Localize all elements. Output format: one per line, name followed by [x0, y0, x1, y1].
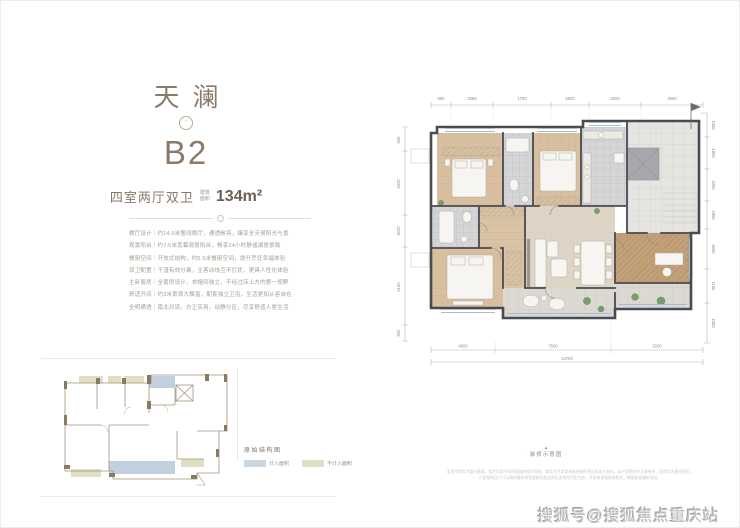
pillow [471, 161, 483, 168]
section-divider-vertical [237, 369, 238, 461]
plant [438, 200, 443, 205]
toilet [463, 212, 472, 223]
section-divider [41, 358, 336, 359]
section-divider [41, 496, 336, 497]
dim-label: 1700 [517, 96, 527, 101]
bed-bench [453, 301, 483, 305]
watermark: 搜狐号@搜狐焦点重庆站 [537, 502, 719, 526]
pillow [469, 257, 483, 265]
sink [522, 196, 529, 203]
divider-circle-icon [217, 215, 224, 222]
kitchen-sink [598, 132, 603, 137]
area-excluded [181, 459, 204, 467]
legend: 计入面积 不计入面积 [244, 460, 352, 467]
bathtub [439, 211, 454, 243]
wardrobe [537, 197, 579, 205]
dining-table [581, 241, 605, 285]
dining-chair [606, 271, 612, 279]
dim-label: 1800 [711, 148, 716, 158]
feature-line: 舒适开间｜约3米景观大飘窗，配套独立卫浴，生活更加从容自在 [129, 289, 315, 301]
sofa-chaise [547, 241, 558, 257]
dim-label: 1000 [711, 120, 716, 130]
balcony-right [615, 283, 691, 309]
dining-chair [574, 258, 580, 266]
dim-label-total: 14700 [561, 356, 573, 361]
plant [598, 306, 604, 312]
dim-label: 4000 [458, 344, 468, 349]
stove-burner [585, 175, 589, 179]
unit-code: B2 [41, 134, 331, 172]
dim-label: 2800 [565, 96, 575, 101]
desk [655, 253, 683, 265]
balcony-table [541, 295, 547, 301]
dim-label: 3020 [396, 226, 401, 236]
legend-swatch-olive [302, 460, 324, 467]
dim-label: 3000 [711, 244, 716, 254]
feature-list: 横厅设计｜约14.6米奢阔横厅，通透敞亮，臻享全天候阳光与景 观景阳台｜约7.5… [129, 228, 315, 314]
pillow [455, 161, 467, 168]
mini-area-fills [71, 376, 204, 477]
dim-label: 1100 [711, 281, 716, 291]
area-excluded [108, 376, 121, 383]
unit-spec-row: 四室两厅双卫 建筑 面积 134m² [41, 187, 331, 206]
bathroom-master [431, 206, 479, 248]
mini-doors [101, 405, 168, 432]
brand-seal-icon: ~ [179, 116, 193, 130]
lounge-chair [549, 298, 565, 310]
dim-label: 1800 [711, 210, 716, 220]
sink [461, 236, 467, 242]
wardrobe-master [507, 251, 521, 285]
tv-console [527, 239, 530, 287]
wardrobe [443, 147, 499, 156]
dim-label: 3200 [652, 344, 662, 349]
fridge [614, 153, 624, 163]
feature-line: 观景阳台｜约7.5米宽幕观景阳台，畅享24小时静谧湖居景致 [129, 240, 315, 252]
legend-item-included: 计入面积 [244, 460, 289, 467]
feature-line: 餐厨空间｜开放式结构，约5.5米餐厨空间，提升烹饪幸福体验 [129, 253, 315, 265]
area-included [149, 376, 175, 388]
dim-label: 600 [396, 136, 401, 144]
plan-caption: ▲ · 装修示意图 · [496, 445, 596, 458]
dim-label: 1000 [711, 318, 716, 328]
floorplan-misc [411, 149, 429, 267]
floorplan-structure-mini [46, 359, 336, 491]
feature-line: 双卫配置｜干湿有效分离，主客动线互不打扰，更具人性化体验 [129, 265, 315, 277]
dining-chair [606, 258, 612, 266]
desk-chair [663, 268, 672, 277]
feature-line: 横厅设计｜约14.6米奢阔横厅，通透敞亮，臻享全天候阳光与景 [129, 228, 315, 240]
floorplan-rendered: 900 3285 1700 2800 2000 3600 4000 7500 3… [381, 81, 726, 396]
dining-chair [574, 271, 580, 279]
dim-label: 800 [396, 329, 401, 337]
plant [632, 294, 639, 301]
area-value: 134m² [216, 188, 262, 206]
pillow [543, 153, 556, 160]
dim-label: 7500 [548, 344, 558, 349]
dim-label: 5100 [396, 282, 401, 292]
dim-label: 3285 [467, 96, 477, 101]
toilet [510, 179, 519, 191]
area-included [109, 461, 175, 474]
bathtub [506, 138, 529, 152]
dim-label: 3320 [396, 179, 401, 189]
pillow [451, 257, 465, 265]
ornament-divider [129, 215, 311, 222]
lounge-chair [523, 295, 539, 307]
plant [657, 297, 665, 305]
dim-label: 900 [438, 96, 446, 101]
dining-chair [574, 245, 580, 253]
sofa [535, 239, 546, 287]
dim-label: 3350 [711, 180, 716, 190]
plant [583, 297, 590, 304]
nightstand [488, 159, 493, 166]
hall-cabinet [481, 208, 523, 216]
legend-swatch-blue [244, 460, 266, 467]
nightstand [445, 159, 450, 166]
coffee-table [551, 259, 567, 277]
legend-item-excluded: 不计入面积 [302, 460, 352, 467]
disclaimer: 本宣传资料为要约邀请，相关内容不排除因政府相关规划、规定及开发商未能控制的原因而… [421, 469, 719, 481]
plant [594, 208, 599, 213]
project-title: 天澜 [41, 77, 331, 114]
area-excluded [71, 469, 101, 477]
feature-line: 主卧套房｜全套房设计，衣帽间独立，不经过床上方的第一视野 [129, 277, 315, 289]
pillow [559, 153, 572, 160]
flyer-page: 天澜 ~ B2 四室两厅双卫 建筑 面积 134m² 横厅设计｜约14.6米奢阔… [0, 0, 740, 528]
area-label: 建筑 面积 [200, 191, 210, 202]
legend-title: 原始结构图 [244, 445, 282, 454]
dim-label: 3600 [667, 96, 677, 101]
dim-label: 2000 [610, 96, 620, 101]
feature-line: 全明通透｜南北对流，方正实用，动静分区，尽享舒适人居生活 [129, 302, 315, 314]
layout-type: 四室两厅双卫 [110, 187, 194, 206]
area-excluded [124, 376, 144, 383]
stove-burner [585, 165, 589, 169]
dining-chair [606, 245, 612, 253]
